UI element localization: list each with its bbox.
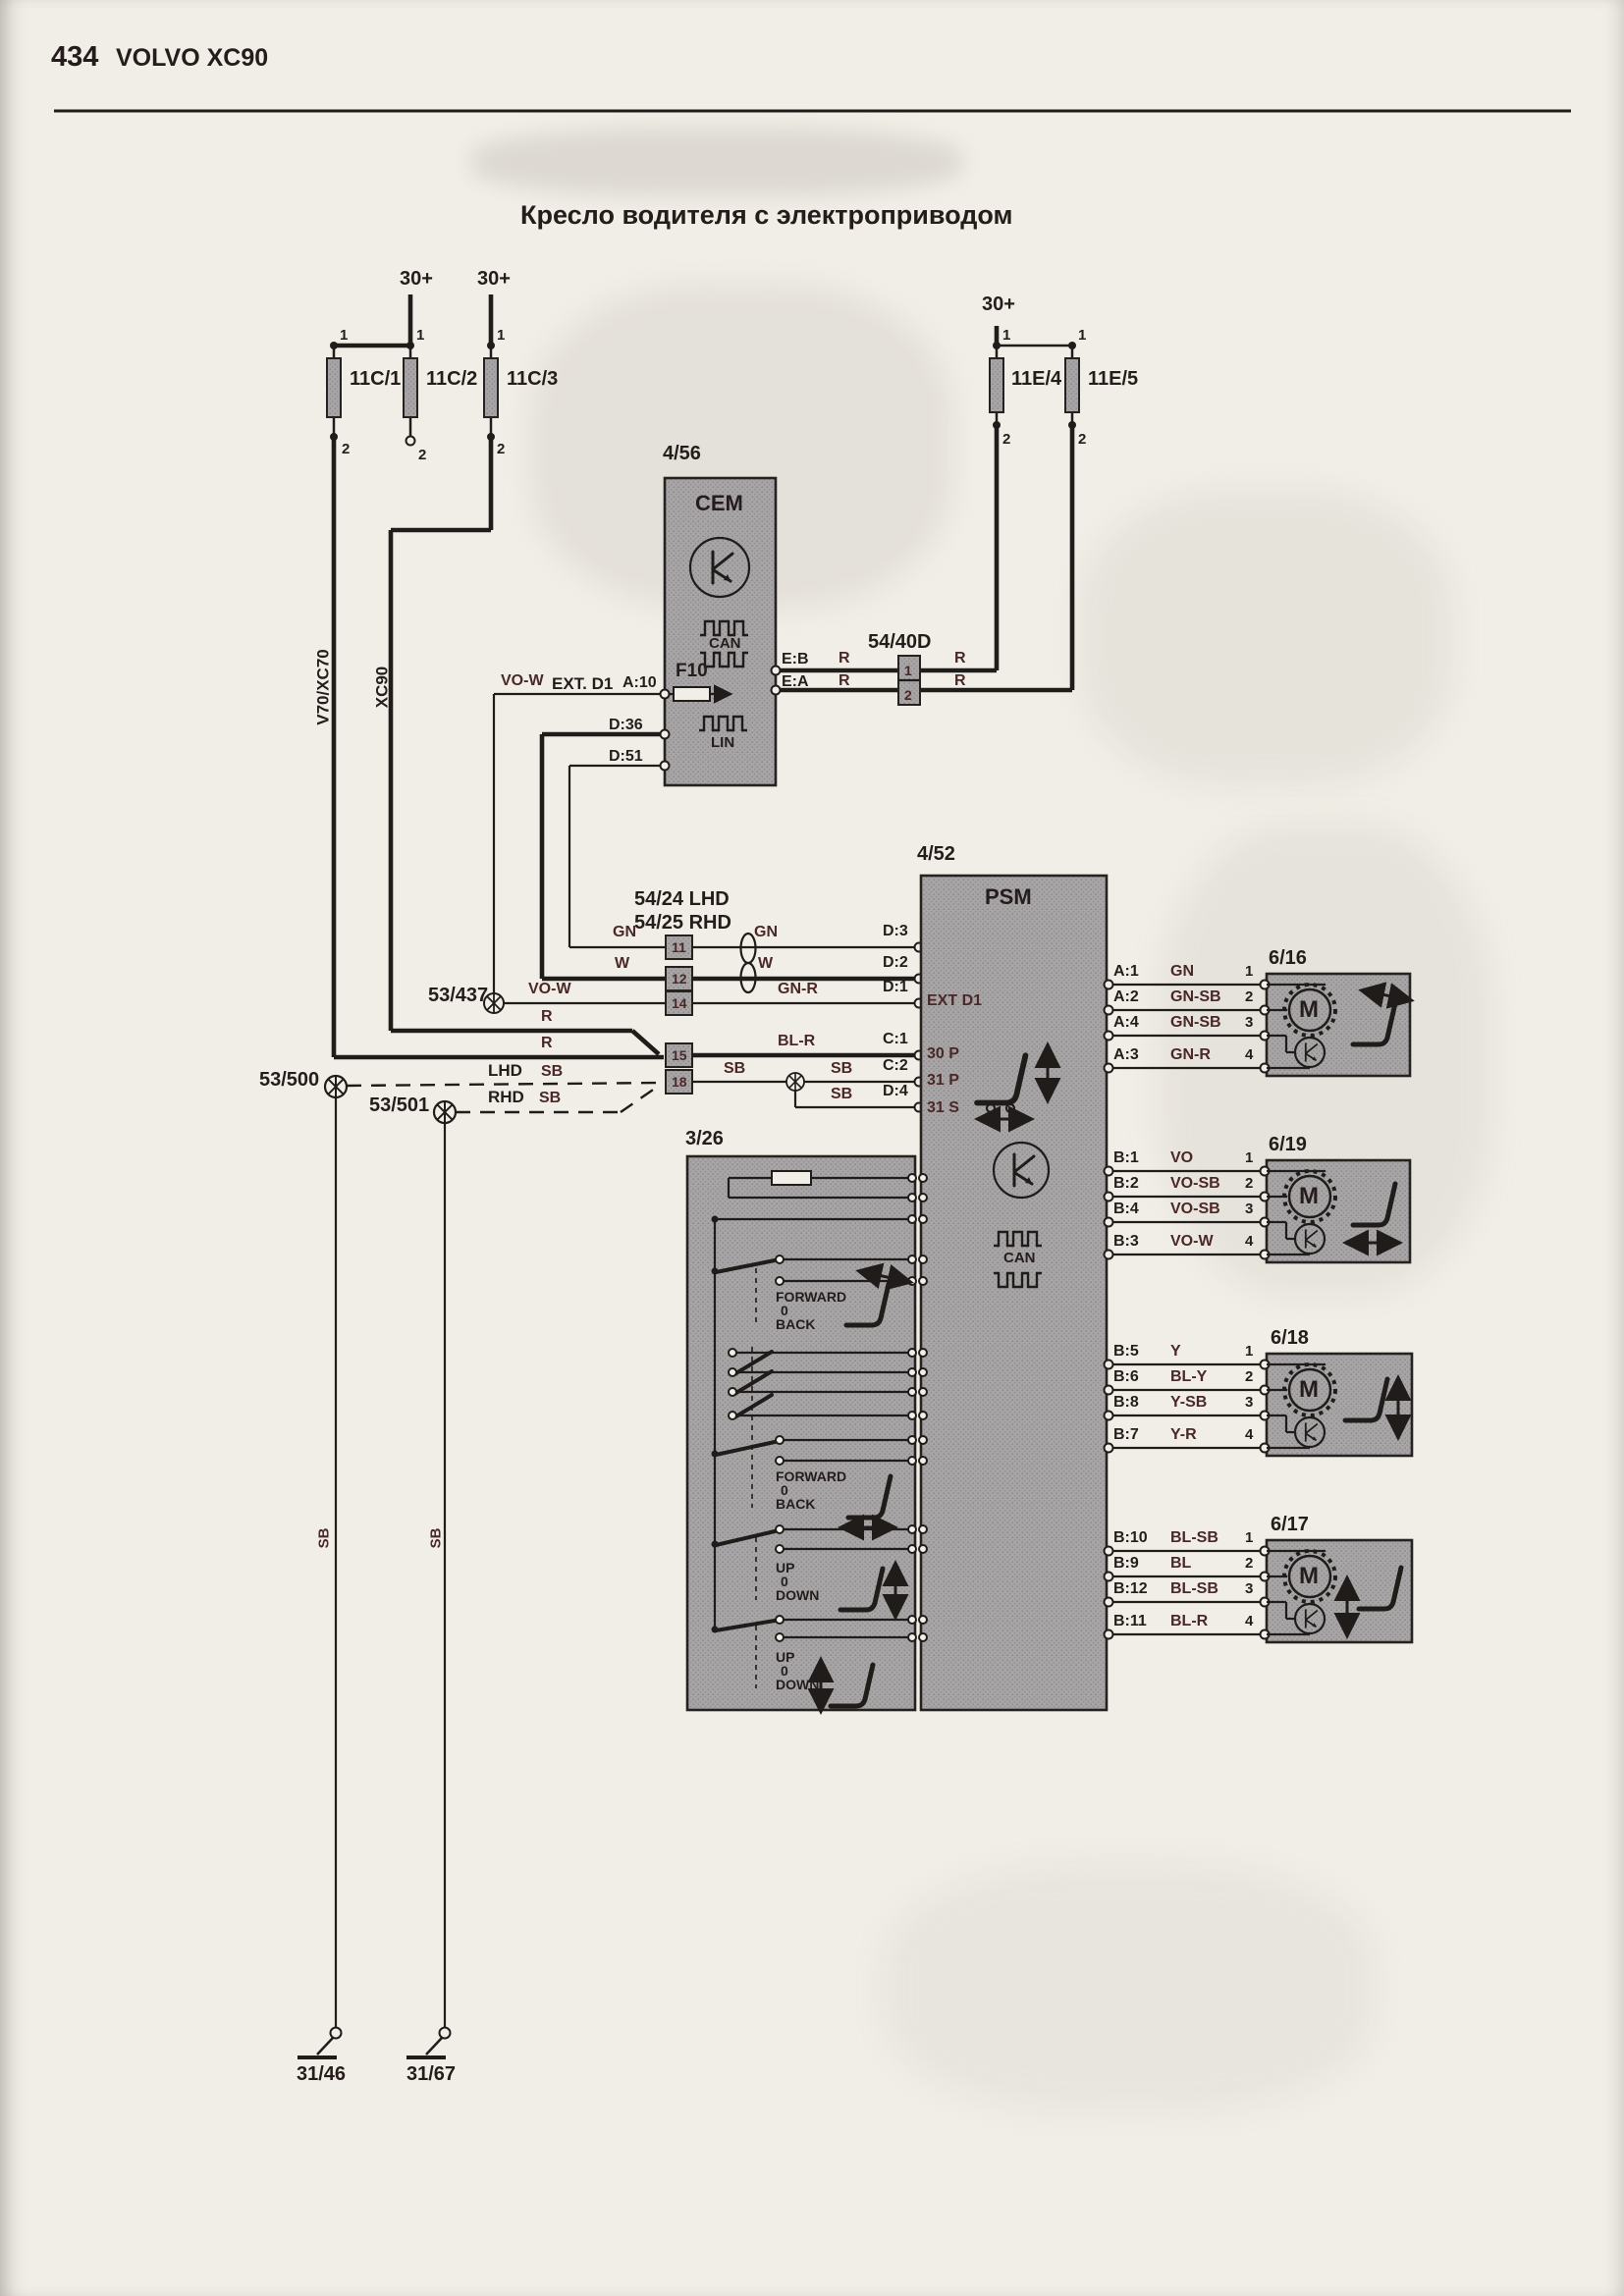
psm-pin-label: B:4: [1113, 1201, 1139, 1217]
wire-label: VO-SB: [1170, 1201, 1220, 1217]
connector-pin: 18: [672, 1075, 687, 1089]
pin-number: 3: [1245, 1395, 1253, 1410]
wire-label: BL: [1170, 1556, 1191, 1572]
pin-number: 3: [1245, 1201, 1253, 1216]
psm-internal-ext-d1: EXT D1: [927, 993, 982, 1009]
diagram-canvas: [0, 0, 1624, 2296]
fuse-label-11c3: 11C/3: [507, 369, 558, 389]
switch-label: DOWN: [776, 1588, 819, 1602]
psm-id: 4/52: [917, 844, 955, 864]
f10-fuse-icon: [674, 687, 710, 701]
wire-label-w: W: [615, 956, 629, 972]
psm-pin-label: A:4: [1113, 1015, 1139, 1031]
wire-label: Y-SB: [1170, 1395, 1207, 1411]
wire-label: BL-R: [1170, 1614, 1208, 1629]
wire-label-r: R: [541, 1036, 553, 1051]
pin-number: 1: [1245, 964, 1253, 979]
wire-label-gn: GN: [754, 925, 778, 940]
vehicle-variant-label: V70/XC70: [315, 649, 332, 725]
splice-label-53-437: 53/437: [428, 986, 488, 1005]
motor-letter: M: [1299, 998, 1319, 1022]
psm-pin-label: B:8: [1113, 1395, 1139, 1411]
ground-label-31-46: 31/46: [297, 2064, 346, 2084]
switch-module-id: 3/26: [685, 1129, 724, 1148]
motor-block-6-18: [1261, 1354, 1413, 1456]
wire-label-vo-w: VO-W: [528, 982, 571, 997]
pin-number: 3: [1245, 1581, 1253, 1596]
f10-label: F10: [676, 662, 708, 680]
supply-30-label: 30+: [477, 269, 511, 289]
pin-number: 1: [1002, 328, 1010, 343]
pin-number: 4: [1245, 1234, 1253, 1249]
pin-number: 2: [1245, 1556, 1253, 1571]
switch-box: [687, 1156, 915, 1710]
pin-number: 1: [416, 328, 424, 343]
wire-label-sb: SB: [831, 1061, 852, 1077]
psm-pin-c2: C:2: [883, 1058, 908, 1074]
motor-id-6-18: 6/18: [1271, 1328, 1309, 1348]
pin-number: 1: [1245, 1150, 1253, 1165]
psm-internal-31p: 31 P: [927, 1073, 959, 1089]
connector-54-24-lhd-id: 54/24 LHD: [634, 889, 730, 909]
psm-pin-label: B:5: [1113, 1344, 1139, 1360]
motor-letter: M: [1299, 1185, 1319, 1208]
connector-pin: 2: [904, 688, 912, 702]
diagram-title: Кресло водителя с электроприводом: [520, 202, 1013, 229]
motor-id-6-16: 6/16: [1269, 948, 1307, 968]
cem-pin-d36: D:36: [609, 718, 643, 733]
switch-label: 0: [781, 1483, 788, 1497]
psm-name: PSM: [985, 886, 1032, 908]
splice-icon: [786, 1073, 804, 1091]
psm-pin-label: B:11: [1113, 1614, 1147, 1629]
psm-pin-label: A:1: [1113, 964, 1139, 980]
fuse-label-11e4: 11E/4: [1011, 369, 1061, 389]
can-label: CAN: [709, 636, 741, 651]
wire-label: BL-SB: [1170, 1530, 1218, 1546]
wire-label-sb: SB: [317, 1528, 332, 1549]
switch-label: 0: [781, 1304, 788, 1317]
pin-number: 2: [497, 442, 505, 456]
wire-label-r: R: [839, 651, 850, 667]
lin-label: LIN: [711, 735, 734, 750]
resistor-icon: [772, 1171, 811, 1185]
connector-pin: 15: [672, 1048, 687, 1062]
pin-number: 1: [340, 328, 348, 343]
wire-label: BL-Y: [1170, 1369, 1207, 1385]
ground-label-31-67: 31/67: [406, 2064, 456, 2084]
wire-label-w: W: [758, 956, 773, 972]
splice-53-501: [434, 1101, 456, 1123]
pin-number: 4: [1245, 1614, 1253, 1629]
wire-label: BL-SB: [1170, 1581, 1218, 1597]
motor-block-6-19: [1261, 1160, 1411, 1262]
can-label: CAN: [1003, 1251, 1036, 1265]
pin-number: 2: [1245, 989, 1253, 1004]
pin-number: 1: [1245, 1530, 1253, 1545]
wire-label: VO: [1170, 1150, 1193, 1166]
psm-pin-c1: C:1: [883, 1032, 908, 1047]
splice-ground-wiring: [298, 993, 666, 2057]
ext-d1-label: EXT. D1: [552, 675, 613, 692]
wire-label-sb: SB: [539, 1091, 561, 1106]
cem-pin-a10: A:10: [623, 675, 657, 691]
connector-pin: 12: [672, 972, 687, 986]
motor-id-6-17: 6/17: [1271, 1515, 1309, 1534]
wire-label-bl-r: BL-R: [778, 1034, 815, 1049]
wire-label-gn: GN: [613, 925, 636, 940]
fuse-11e4-body: [990, 358, 1003, 412]
pin-number: 2: [1245, 1369, 1253, 1384]
switch-label: BACK: [776, 1497, 815, 1511]
pin-number: 2: [342, 442, 350, 456]
fuse-label-11c1: 11C/1: [350, 369, 401, 389]
switch-label: BACK: [776, 1317, 815, 1331]
ground-31-46: [298, 2028, 342, 2058]
fuse-label-11c2: 11C/2: [426, 369, 477, 389]
fuse-11e5-body: [1065, 358, 1079, 412]
wire-label: Y-R: [1170, 1427, 1197, 1443]
supply-30-label: 30+: [982, 294, 1015, 314]
vehicle-variant-label: XC90: [374, 667, 391, 709]
scanned-wiring-diagram-page: 434 VOLVO XC90 Кресло водителя с электро…: [0, 0, 1624, 2296]
page-brand: VOLVO XC90: [116, 46, 268, 71]
switch-label: 0: [781, 1664, 788, 1678]
pin-number: 2: [1002, 432, 1010, 447]
pin-number: 1: [1245, 1344, 1253, 1359]
psm-pin-d3: D:3: [883, 924, 908, 939]
psm-internal-31s: 31 S: [927, 1100, 959, 1116]
wire-label: Y: [1170, 1344, 1181, 1360]
psm-pin-label: B:2: [1113, 1176, 1139, 1192]
variant-label-lhd: LHD: [488, 1062, 522, 1079]
motor-letter: M: [1299, 1378, 1319, 1402]
wire-label-r: R: [954, 651, 966, 667]
switch-label: DOWN: [776, 1678, 819, 1691]
wire-label: GN-SB: [1170, 989, 1221, 1005]
splice-53-500: [325, 1076, 347, 1097]
splice-label-53-500: 53/500: [259, 1070, 319, 1090]
motor-id-6-19: 6/19: [1269, 1135, 1307, 1154]
wire-label: VO-W: [1170, 1234, 1214, 1250]
pin-number: 2: [1078, 432, 1086, 447]
pin-number: 2: [418, 448, 426, 462]
wire-label-r: R: [954, 673, 966, 689]
supply-30-label: 30+: [400, 269, 433, 289]
wire-label-sb: SB: [831, 1087, 852, 1102]
wire-label: GN: [1170, 964, 1194, 980]
switch-label: UP: [776, 1650, 794, 1664]
wire-label: GN-SB: [1170, 1015, 1221, 1031]
pin-number: 1: [1078, 328, 1086, 343]
psm-pin-d4: D:4: [883, 1084, 908, 1099]
page-number: 434: [51, 43, 98, 72]
psm-pin-label: B:7: [1113, 1427, 1139, 1443]
connector-54-25-rhd-id: 54/25 RHD: [634, 913, 731, 933]
fuse-11c2-body: [404, 358, 417, 417]
motor-letter: M: [1299, 1565, 1319, 1588]
pin-number: 1: [497, 328, 505, 343]
wire-label-sb: SB: [724, 1061, 745, 1077]
connector-pin: 14: [672, 996, 687, 1010]
motor-block-6-17: [1261, 1540, 1413, 1642]
psm-pin-label: B:3: [1113, 1234, 1139, 1250]
splice-label-53-501: 53/501: [369, 1095, 429, 1115]
cem-pin-ea: E:A: [782, 674, 809, 690]
cem-name: CEM: [695, 493, 743, 514]
fuse-11c3-body: [484, 358, 498, 417]
wire-label: GN-R: [1170, 1047, 1211, 1063]
psm-pin-label: B:1: [1113, 1150, 1139, 1166]
psm-pin-d1: D:1: [883, 980, 908, 995]
switch-label: 0: [781, 1575, 788, 1588]
connector-54-40d-id: 54/40D: [868, 632, 932, 652]
psm-pin-label: A:2: [1113, 989, 1139, 1005]
connector-pin: 11: [672, 940, 686, 954]
wire-label-r: R: [839, 673, 850, 689]
cem-pin-eb: E:B: [782, 652, 809, 667]
psm-pin-label: B:10: [1113, 1530, 1148, 1546]
fuse-label-11e5: 11E/5: [1088, 369, 1138, 389]
cem-pin-d51: D:51: [609, 749, 643, 765]
wire-label-sb: SB: [429, 1528, 444, 1549]
wire-label-r: R: [541, 1009, 553, 1025]
pin-number: 4: [1245, 1047, 1253, 1062]
psm-pin-d2: D:2: [883, 955, 908, 971]
switch-label: UP: [776, 1561, 794, 1575]
ground-31-67: [406, 2028, 451, 2058]
psm-pin-label: B:12: [1113, 1581, 1148, 1597]
psm-internal-30p: 30 P: [927, 1046, 959, 1062]
pin-number: 3: [1245, 1015, 1253, 1030]
switch-module-3-26: [687, 1156, 927, 1710]
pin-number: 2: [1245, 1176, 1253, 1191]
fuse-11c1-body: [327, 358, 341, 417]
connector-pin: 1: [904, 664, 912, 677]
cem-id: 4/56: [663, 444, 701, 463]
wire-label-sb: SB: [541, 1064, 563, 1080]
psm-pin-label: B:9: [1113, 1556, 1139, 1572]
variant-label-rhd: RHD: [488, 1089, 524, 1105]
switch-label: FORWARD: [776, 1469, 846, 1483]
psm-pin-label: A:3: [1113, 1047, 1139, 1063]
wire-label: VO-SB: [1170, 1176, 1220, 1192]
pin-number: 4: [1245, 1427, 1253, 1442]
wire-label-vo-w: VO-W: [501, 673, 544, 689]
psm-pin-label: B:6: [1113, 1369, 1139, 1385]
switch-label: FORWARD: [776, 1290, 846, 1304]
wire-label-gn-r: GN-R: [778, 982, 818, 997]
motor-block-6-16: [1261, 974, 1411, 1076]
